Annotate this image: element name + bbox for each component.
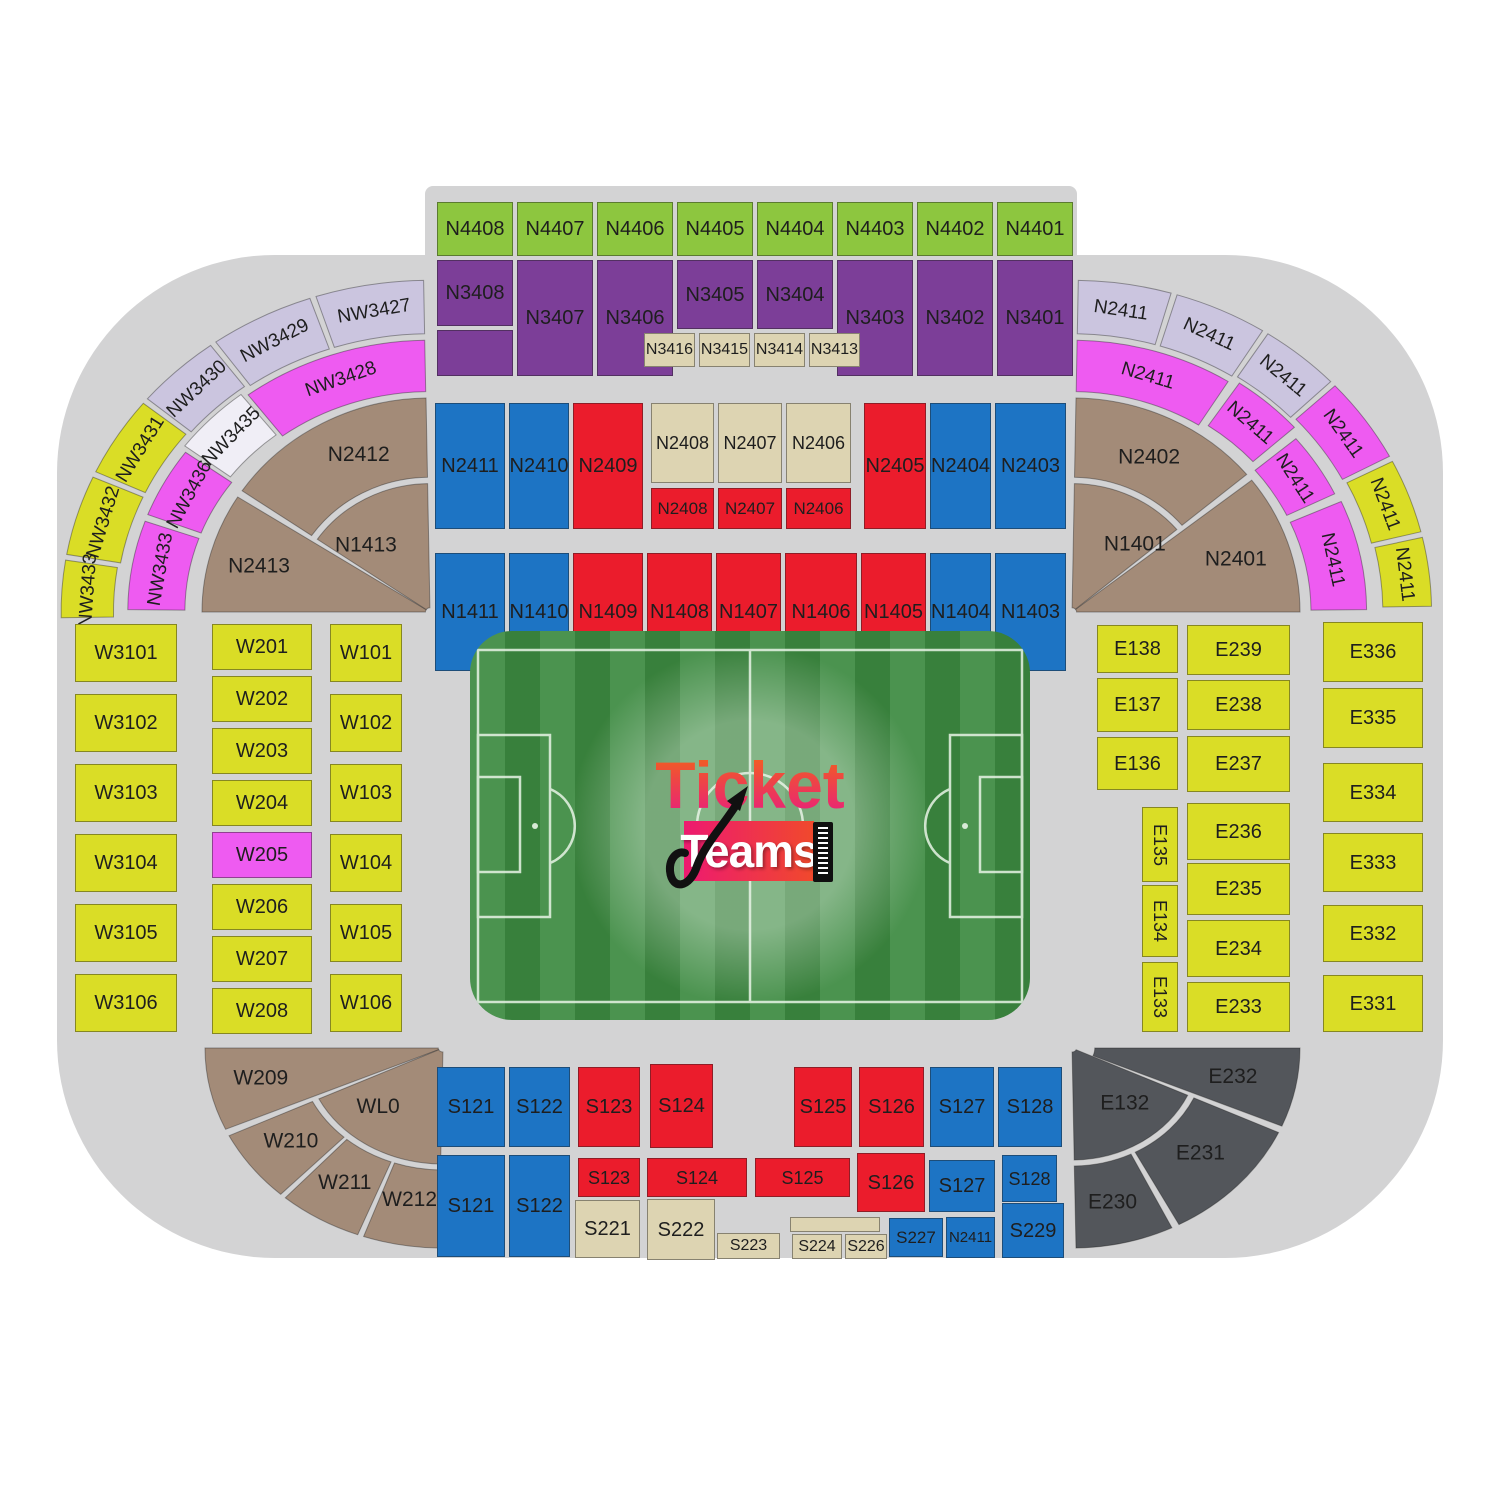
- section-label: N4405: [686, 219, 745, 239]
- section-label: WL0: [357, 1095, 400, 1118]
- section-label: N4404: [766, 219, 825, 239]
- section-label: W210: [263, 1129, 318, 1152]
- section-E336[interactable]: E336: [1323, 622, 1423, 682]
- section-label: N2405: [866, 456, 925, 476]
- section-label: E134: [1151, 900, 1169, 942]
- section-label: W208: [236, 1001, 288, 1021]
- section-label: E233: [1215, 997, 1262, 1017]
- section-label: N3402: [926, 308, 985, 328]
- section-S121[interactable]: S121: [437, 1155, 505, 1257]
- section-N4406[interactable]: N4406: [597, 202, 673, 256]
- section-N3415[interactable]: N3415: [699, 333, 750, 367]
- section-N4407[interactable]: N4407: [517, 202, 593, 256]
- section-label: W3105: [94, 923, 157, 943]
- section-label: S229: [1010, 1221, 1057, 1241]
- section-W3103[interactable]: W3103: [75, 764, 177, 822]
- section-label: N1406: [792, 602, 851, 622]
- section-label: W202: [236, 689, 288, 709]
- section-E134[interactable]: E134: [1142, 885, 1178, 957]
- section-label: W203: [236, 741, 288, 761]
- section-N3404[interactable]: N3404: [757, 260, 833, 329]
- section-label: N2412: [328, 443, 390, 466]
- section-label: E336: [1350, 642, 1397, 662]
- section-E237[interactable]: E237: [1187, 736, 1290, 792]
- section-W203[interactable]: W203: [212, 728, 312, 774]
- section-E234[interactable]: E234: [1187, 920, 1290, 977]
- section-NW3432[interactable]: NW3432: [67, 477, 143, 563]
- section-label: E137: [1114, 695, 1161, 715]
- section-label: E230: [1088, 1191, 1137, 1214]
- section-label: S126: [868, 1173, 915, 1193]
- section-N4401[interactable]: N4401: [997, 202, 1073, 256]
- section-label: N2411: [949, 1230, 992, 1245]
- section-label: W3104: [94, 853, 157, 873]
- section-N2408[interactable]: N2408: [651, 403, 714, 483]
- section-S126[interactable]: S126: [857, 1153, 925, 1212]
- section-label: W104: [340, 853, 392, 873]
- section-label: N4401: [1006, 219, 1065, 239]
- section-label: N2410: [510, 456, 569, 476]
- section-label: E136: [1114, 754, 1161, 774]
- section-label: N1410: [510, 602, 569, 622]
- section-W101[interactable]: W101: [330, 624, 402, 682]
- section-N4404[interactable]: N4404: [757, 202, 833, 256]
- section-label: N3407: [526, 308, 585, 328]
- section-E135[interactable]: E135: [1142, 807, 1178, 882]
- section-label: S224: [798, 1239, 835, 1255]
- section-label: E235: [1215, 879, 1262, 899]
- section-label: N3404: [766, 285, 825, 305]
- section-label: S124: [676, 1169, 718, 1187]
- section-label: S122: [516, 1196, 563, 1216]
- section-label: W3102: [94, 713, 157, 733]
- section-N4402[interactable]: N4402: [917, 202, 993, 256]
- section-NW3427[interactable]: NW3427: [316, 280, 425, 347]
- section-label: N3406: [606, 308, 665, 328]
- section-S128[interactable]: S128: [1002, 1155, 1057, 1202]
- section-label: N1403: [1001, 602, 1060, 622]
- section-S126[interactable]: S126: [859, 1067, 924, 1147]
- section-label: N4402: [926, 219, 985, 239]
- section-N3413[interactable]: N3413: [809, 333, 860, 367]
- section-E136[interactable]: E136: [1097, 737, 1178, 790]
- section-S125[interactable]: S125: [755, 1158, 850, 1197]
- section-label: N2402: [1118, 445, 1180, 468]
- section-label: S121: [448, 1097, 495, 1117]
- section-label: N3408: [446, 283, 505, 303]
- section-S121[interactable]: S121: [437, 1067, 505, 1147]
- section-label: N1405: [864, 602, 923, 622]
- section-label: N2407: [725, 500, 775, 517]
- barcode-icon: [818, 827, 828, 877]
- section-N4405[interactable]: N4405: [677, 202, 753, 256]
- section-W3106[interactable]: W3106: [75, 974, 177, 1032]
- section-W104[interactable]: W104: [330, 834, 402, 892]
- logo-swoosh-icon: [620, 780, 780, 910]
- section-label: W3103: [94, 783, 157, 803]
- section-S123[interactable]: S123: [578, 1067, 640, 1147]
- section-label: E334: [1350, 783, 1397, 803]
- section-E235[interactable]: E235: [1187, 863, 1290, 915]
- section-W3105[interactable]: W3105: [75, 904, 177, 962]
- section-N3402[interactable]: N3402: [917, 260, 993, 376]
- section-S222[interactable]: S222: [647, 1199, 715, 1260]
- section-label: N2408: [657, 500, 707, 517]
- section-label: N2408: [656, 434, 709, 452]
- section-label: W211: [318, 1171, 371, 1194]
- section-E233[interactable]: E233: [1187, 982, 1290, 1032]
- section-label: N3416: [646, 342, 693, 358]
- section-N3408[interactable]: N3408: [437, 260, 513, 326]
- section-W202[interactable]: W202: [212, 676, 312, 722]
- section-label: W106: [340, 993, 392, 1013]
- section-S226[interactable]: S226: [845, 1234, 887, 1259]
- section-label: N1404: [931, 602, 990, 622]
- section-W102[interactable]: W102: [330, 694, 402, 752]
- section-label: E332: [1350, 924, 1397, 944]
- section-label: N2401: [1205, 548, 1267, 571]
- section-label: E135: [1151, 823, 1169, 865]
- section-N3414[interactable]: N3414: [754, 333, 805, 367]
- section-label: S121: [448, 1196, 495, 1216]
- section-N2408[interactable]: N2408: [651, 488, 714, 529]
- section-N3416[interactable]: N3416: [644, 333, 695, 367]
- section-E331[interactable]: E331: [1323, 975, 1423, 1032]
- section-N3401[interactable]: N3401: [997, 260, 1073, 376]
- section-block[interactable]: [437, 330, 513, 376]
- section-label: E237: [1215, 754, 1262, 774]
- section-label: N3413: [811, 342, 858, 358]
- section-E334[interactable]: E334: [1323, 763, 1423, 822]
- section-N2404[interactable]: N2404: [930, 403, 991, 529]
- section-label: N2413: [228, 555, 290, 578]
- section-label: S227: [896, 1229, 936, 1246]
- section-label: S127: [939, 1176, 986, 1196]
- section-label: S123: [588, 1169, 630, 1187]
- section-N2411[interactable]: N2411: [946, 1217, 995, 1258]
- section-N2410[interactable]: N2410: [509, 403, 569, 529]
- section-label: E138: [1114, 639, 1161, 659]
- section-label: E133: [1151, 976, 1169, 1018]
- section-label: N3414: [756, 342, 803, 358]
- section-label: N1408: [650, 602, 709, 622]
- section-S122[interactable]: S122: [509, 1067, 570, 1147]
- section-E333[interactable]: E333: [1323, 833, 1423, 892]
- section-label: N2409: [579, 456, 638, 476]
- section-label: W102: [340, 713, 392, 733]
- section-N2406[interactable]: N2406: [786, 403, 851, 483]
- section-label: N3405: [686, 285, 745, 305]
- section-label: W103: [340, 783, 392, 803]
- section-W205[interactable]: W205: [212, 832, 312, 878]
- section-label: N1411: [441, 602, 498, 622]
- section-label: S123: [586, 1097, 633, 1117]
- section-S125[interactable]: S125: [794, 1067, 852, 1147]
- section-label: N1401: [1104, 533, 1166, 556]
- section-label: W3106: [94, 993, 157, 1013]
- section-label: E232: [1208, 1065, 1257, 1088]
- section-E239[interactable]: E239: [1187, 625, 1290, 675]
- section-E138[interactable]: E138: [1097, 625, 1178, 673]
- section-N4408[interactable]: N4408: [437, 202, 513, 256]
- section-label: N4403: [846, 219, 905, 239]
- section-W204[interactable]: W204: [212, 780, 312, 826]
- section-E236[interactable]: E236: [1187, 803, 1290, 860]
- section-S124[interactable]: S124: [647, 1158, 747, 1197]
- section-label: W3101: [94, 643, 157, 663]
- section-label: E132: [1100, 1092, 1149, 1115]
- section-label: N2406: [792, 434, 845, 452]
- section-label: N4408: [446, 219, 505, 239]
- section-S127[interactable]: S127: [930, 1067, 994, 1147]
- section-E137[interactable]: E137: [1097, 678, 1178, 732]
- section-NW3433[interactable]: NW3433: [61, 553, 117, 628]
- section-S227[interactable]: S227: [889, 1218, 943, 1257]
- section-N2403[interactable]: N2403: [995, 403, 1066, 529]
- section-N2409[interactable]: N2409: [573, 403, 643, 529]
- section-S224[interactable]: S224: [792, 1234, 842, 1259]
- section-N2405[interactable]: N2405: [864, 403, 926, 529]
- section-label: W105: [340, 923, 392, 943]
- section-label: N1413: [335, 534, 397, 557]
- section-N2411[interactable]: N2411: [435, 403, 505, 529]
- section-S229[interactable]: S229: [1002, 1203, 1064, 1258]
- section-label: E335: [1350, 708, 1397, 728]
- section-label: N2411: [441, 456, 498, 476]
- section-N2411[interactable]: N2411: [1347, 461, 1421, 543]
- section-label: S128: [1008, 1170, 1050, 1188]
- section-N2407[interactable]: N2407: [718, 403, 782, 483]
- section-label: N2404: [931, 456, 990, 476]
- section-label: N1409: [579, 602, 638, 622]
- section-W3102[interactable]: W3102: [75, 694, 177, 752]
- section-label: S126: [868, 1097, 915, 1117]
- section-S127[interactable]: S127: [929, 1160, 995, 1212]
- section-label: N3415: [701, 342, 748, 358]
- section-label: E239: [1215, 640, 1262, 660]
- section-label: W206: [236, 897, 288, 917]
- section-label: E231: [1176, 1142, 1225, 1165]
- section-label: S128: [1007, 1097, 1054, 1117]
- section-N2411[interactable]: N2411: [1077, 280, 1171, 344]
- section-label: N4406: [606, 219, 665, 239]
- ticket-stub-icon: [813, 822, 833, 882]
- section-label: W205: [236, 845, 288, 865]
- section-label: S125: [781, 1169, 823, 1187]
- section-E332[interactable]: E332: [1323, 905, 1423, 962]
- section-label: E238: [1215, 695, 1262, 715]
- section-label: W207: [236, 949, 288, 969]
- section-label: S221: [584, 1219, 631, 1239]
- section-label: E236: [1215, 822, 1262, 842]
- section-W207[interactable]: W207: [212, 936, 312, 982]
- section-label: E331: [1350, 994, 1397, 1014]
- section-label: S226: [847, 1239, 884, 1255]
- section-block[interactable]: [790, 1217, 880, 1232]
- section-label: S122: [516, 1097, 563, 1117]
- section-N3405[interactable]: N3405: [677, 260, 753, 329]
- section-S223[interactable]: S223: [717, 1233, 780, 1259]
- section-label: E333: [1350, 853, 1397, 873]
- section-N2406[interactable]: N2406: [786, 488, 851, 529]
- section-label: N2403: [1001, 456, 1060, 476]
- section-label: N3403: [846, 308, 905, 328]
- section-label: W212: [382, 1188, 437, 1211]
- section-label: S127: [939, 1097, 986, 1117]
- section-S122[interactable]: S122: [509, 1155, 570, 1257]
- section-N2411[interactable]: N2411: [1375, 537, 1432, 607]
- section-S128[interactable]: S128: [998, 1067, 1062, 1147]
- section-label: N3401: [1006, 308, 1065, 328]
- section-label: N2407: [723, 434, 776, 452]
- section-label: W204: [236, 793, 288, 813]
- section-W3104[interactable]: W3104: [75, 834, 177, 892]
- section-W201[interactable]: W201: [212, 624, 312, 670]
- stadium-seating-map: N2413N1413N2412N2401N1401N2402W209WL0W21…: [0, 0, 1500, 1500]
- section-S221[interactable]: S221: [575, 1200, 640, 1258]
- section-W106[interactable]: W106: [330, 974, 402, 1032]
- section-label: S222: [658, 1220, 705, 1240]
- section-label: N1407: [719, 602, 778, 622]
- section-label: W101: [340, 643, 392, 663]
- section-label: N4407: [526, 219, 585, 239]
- section-E238[interactable]: E238: [1187, 680, 1290, 730]
- section-label: W201: [236, 637, 288, 657]
- section-label: S223: [730, 1238, 767, 1254]
- section-label: E234: [1215, 939, 1262, 959]
- section-W208[interactable]: W208: [212, 988, 312, 1034]
- section-E133[interactable]: E133: [1142, 962, 1178, 1032]
- section-N2411[interactable]: N2411: [1290, 502, 1366, 611]
- section-W3101[interactable]: W3101: [75, 624, 177, 682]
- section-N4403[interactable]: N4403: [837, 202, 913, 256]
- section-S123[interactable]: S123: [578, 1158, 640, 1197]
- section-label: S125: [800, 1097, 847, 1117]
- section-S124[interactable]: S124: [650, 1064, 713, 1148]
- section-N2407[interactable]: N2407: [718, 488, 782, 529]
- section-label: S124: [658, 1096, 705, 1116]
- section-label: W209: [233, 1066, 288, 1089]
- section-E335[interactable]: E335: [1323, 688, 1423, 748]
- section-N3407[interactable]: N3407: [517, 260, 593, 376]
- section-W103[interactable]: W103: [330, 764, 402, 822]
- section-NW3433[interactable]: NW3433: [128, 521, 199, 610]
- section-W206[interactable]: W206: [212, 884, 312, 930]
- section-label: N2406: [793, 500, 843, 517]
- section-W105[interactable]: W105: [330, 904, 402, 962]
